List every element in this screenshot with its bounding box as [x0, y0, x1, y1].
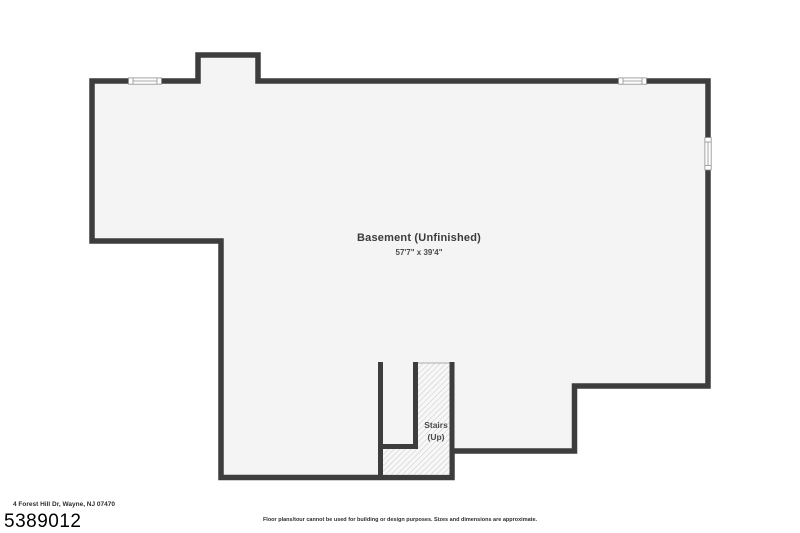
address-text: 4 Forest Hill Dr, Wayne, NJ 07470	[13, 501, 115, 508]
window-top-left	[129, 78, 162, 84]
listing-number-watermark: 5389012	[4, 511, 81, 533]
window-right	[705, 138, 711, 171]
floor-plan-page: Basement (Unfinished) 57'7" x 39'4" Stai…	[0, 0, 800, 533]
stairs-label: Stairs (Up)	[404, 419, 468, 443]
basement-outline	[92, 55, 708, 478]
room-label: Basement (Unfinished)	[269, 232, 569, 244]
floor-plan-canvas	[0, 0, 800, 533]
stairs-label-line2: (Up)	[404, 431, 468, 443]
stairs-label-line1: Stairs	[404, 419, 468, 431]
room-dimensions: 57'7" x 39'4"	[269, 248, 569, 257]
window-top-right	[619, 78, 647, 84]
disclaimer-text: Floor plans/tour cannot be used for buil…	[100, 517, 700, 523]
